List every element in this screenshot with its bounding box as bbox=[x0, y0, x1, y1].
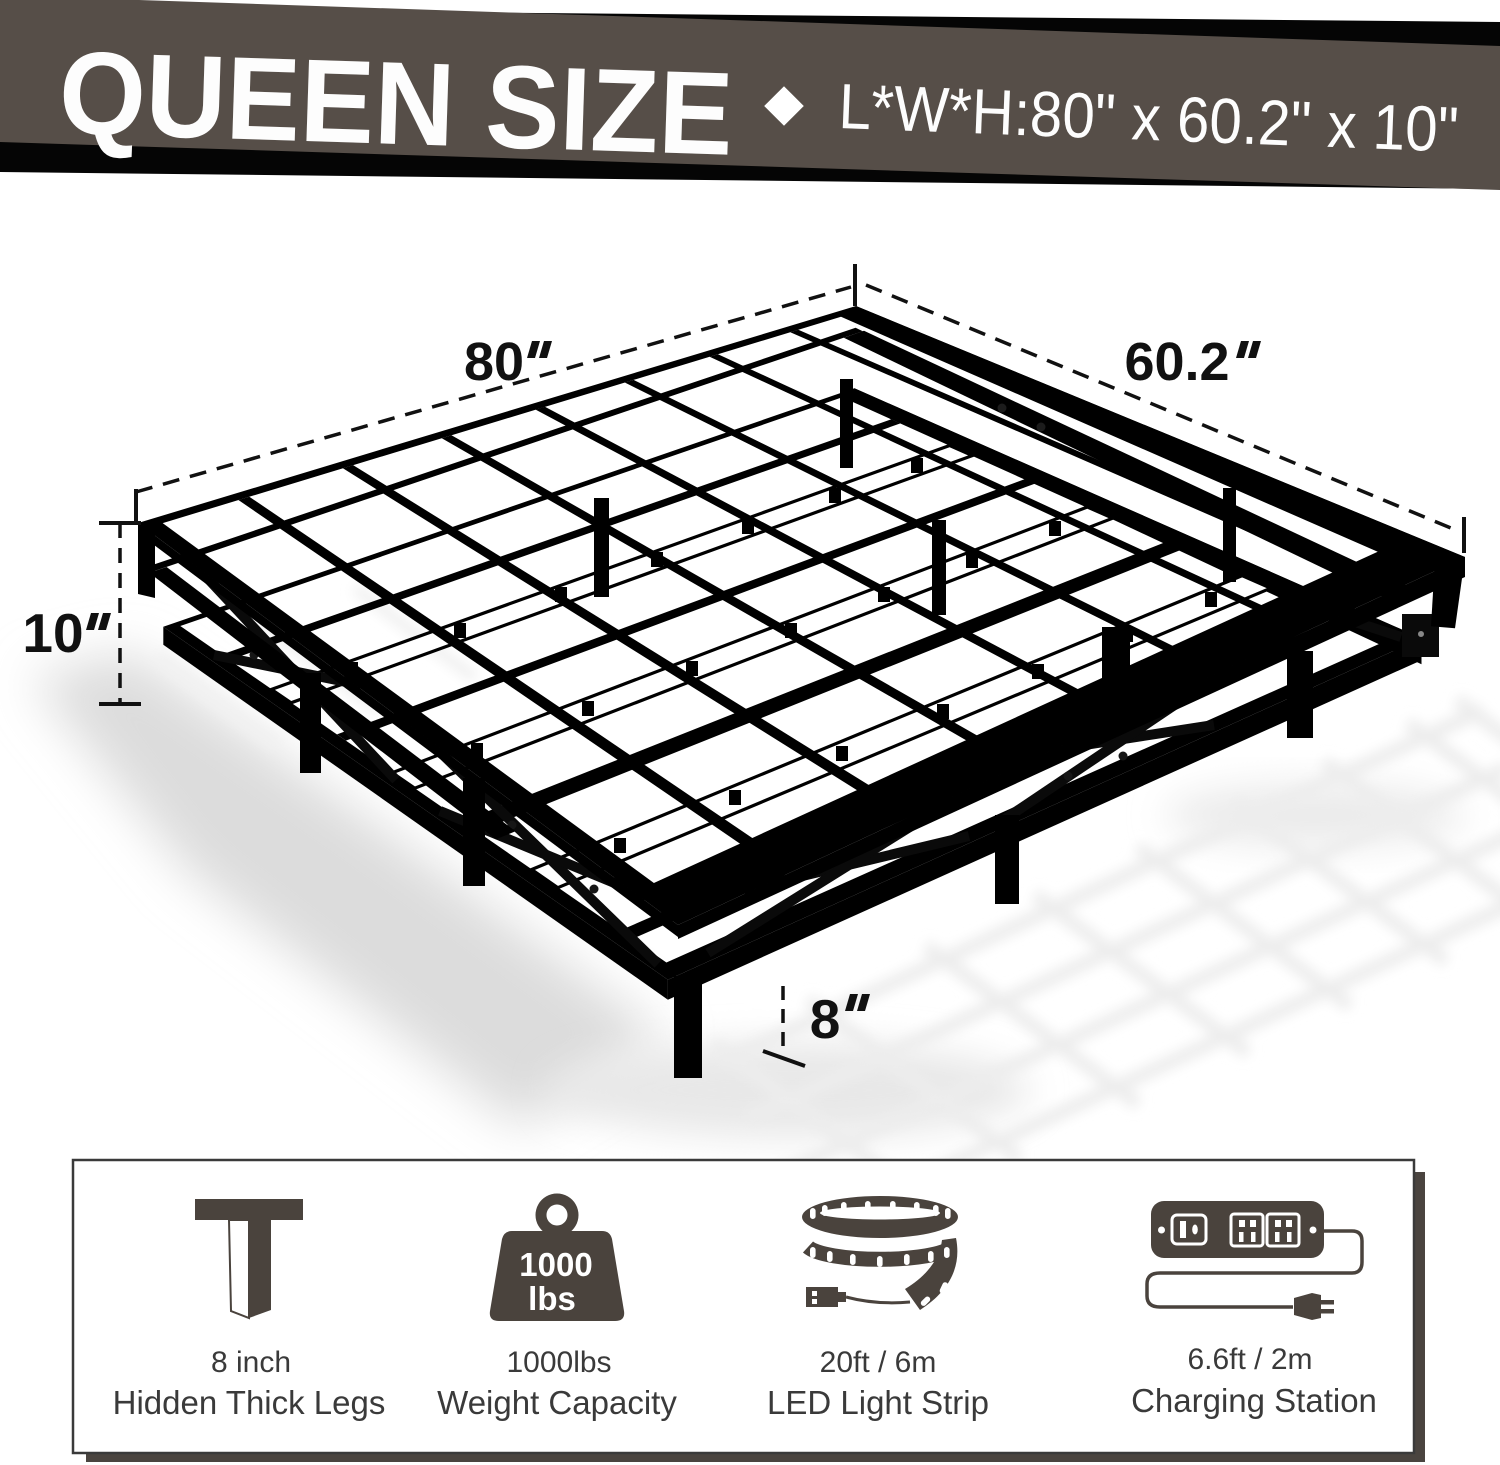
svg-text:1000lbs: 1000lbs bbox=[506, 1346, 611, 1379]
svg-text:8: 8 bbox=[810, 988, 841, 1050]
svg-text:Weight Capacity: Weight Capacity bbox=[437, 1384, 677, 1421]
svg-text:Charging Station: Charging Station bbox=[1131, 1382, 1377, 1419]
svg-text:80: 80 bbox=[464, 332, 524, 392]
svg-text:10: 10 bbox=[22, 602, 83, 664]
svg-text:6.6ft / 2m: 6.6ft / 2m bbox=[1187, 1343, 1312, 1376]
svg-text:60.2: 60.2 bbox=[1124, 332, 1229, 392]
svg-text:lbs: lbs bbox=[528, 1280, 576, 1317]
svg-text:20ft / 6m: 20ft / 6m bbox=[820, 1346, 937, 1379]
svg-text:LED Light Strip: LED Light Strip bbox=[767, 1384, 989, 1421]
svg-text:Hidden Thick Legs: Hidden Thick Legs bbox=[113, 1384, 386, 1421]
svg-text:1000: 1000 bbox=[519, 1246, 592, 1283]
svg-text:8 inch: 8 inch bbox=[211, 1346, 291, 1379]
svg-text:QUEEN SIZE: QUEEN SIZE bbox=[57, 27, 735, 181]
